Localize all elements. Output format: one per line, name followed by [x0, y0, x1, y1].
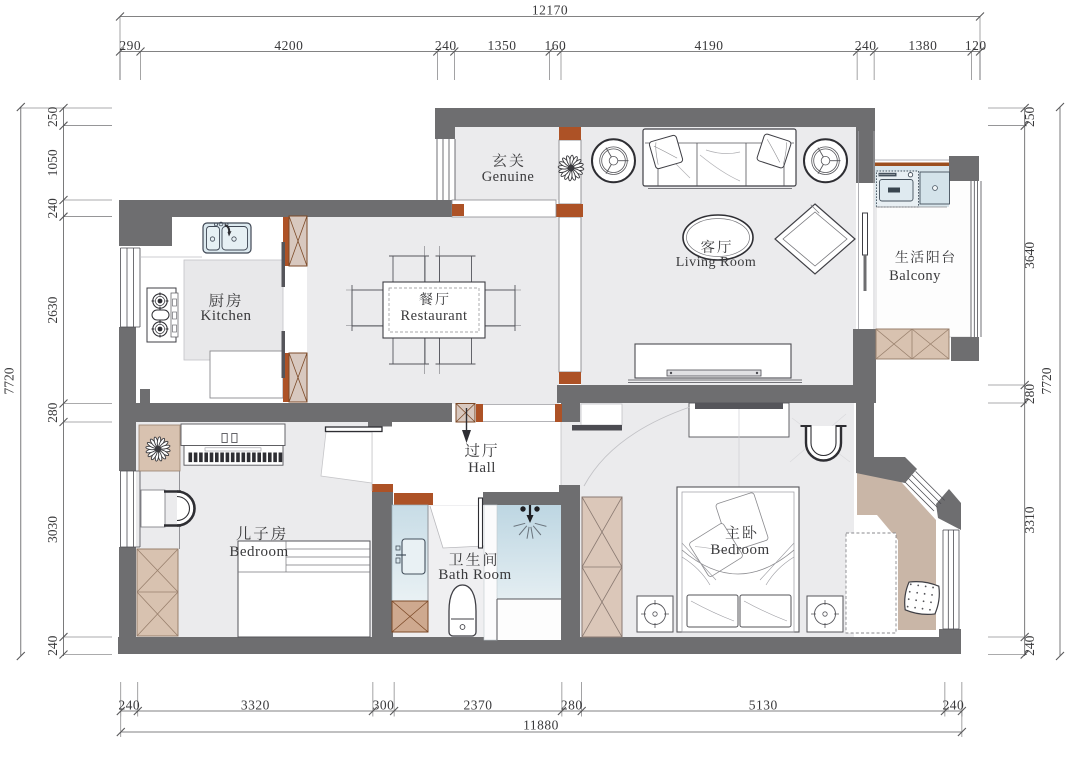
svg-text:240: 240	[45, 198, 60, 219]
svg-text:4190: 4190	[695, 38, 724, 53]
svg-text:4200: 4200	[274, 38, 303, 53]
svg-text:280: 280	[45, 402, 60, 423]
svg-text:160: 160	[544, 38, 566, 53]
svg-text:3320: 3320	[241, 698, 270, 713]
svg-text:120: 120	[965, 38, 987, 53]
svg-text:250: 250	[45, 106, 60, 127]
svg-text:Living Room: Living Room	[676, 255, 757, 270]
svg-text:Bedroom: Bedroom	[229, 544, 288, 560]
svg-text:280: 280	[1022, 384, 1037, 405]
svg-text:240: 240	[943, 698, 965, 713]
svg-text:11880: 11880	[523, 718, 559, 733]
svg-text:240: 240	[118, 698, 140, 713]
svg-text:Genuine: Genuine	[482, 169, 535, 185]
svg-text:240: 240	[45, 635, 60, 656]
svg-text:3030: 3030	[45, 516, 60, 543]
svg-text:240: 240	[435, 38, 457, 53]
svg-text:7720: 7720	[2, 367, 17, 394]
svg-text:12170: 12170	[532, 3, 568, 18]
svg-text:3640: 3640	[1022, 242, 1037, 269]
svg-text:Balcony: Balcony	[889, 268, 941, 284]
svg-text:Bedroom: Bedroom	[710, 542, 769, 558]
svg-text:290: 290	[119, 38, 141, 53]
svg-text:1380: 1380	[908, 38, 937, 53]
svg-text:240: 240	[855, 38, 877, 53]
svg-text:Restaurant: Restaurant	[400, 308, 467, 324]
svg-text:240: 240	[1022, 635, 1037, 656]
svg-text:Bath Room: Bath Room	[438, 567, 511, 583]
svg-text:3310: 3310	[1022, 506, 1037, 533]
svg-text:280: 280	[561, 698, 583, 713]
svg-text:7720: 7720	[1039, 367, 1054, 394]
svg-text:2370: 2370	[464, 698, 493, 713]
svg-text:250: 250	[1022, 106, 1037, 127]
svg-text:300: 300	[373, 698, 395, 713]
svg-text:1350: 1350	[488, 38, 517, 53]
svg-text:Hall: Hall	[468, 460, 496, 476]
svg-text:1050: 1050	[45, 149, 60, 176]
svg-text:2630: 2630	[45, 296, 60, 323]
svg-text:5130: 5130	[749, 698, 778, 713]
svg-text:Kitchen: Kitchen	[201, 308, 252, 324]
